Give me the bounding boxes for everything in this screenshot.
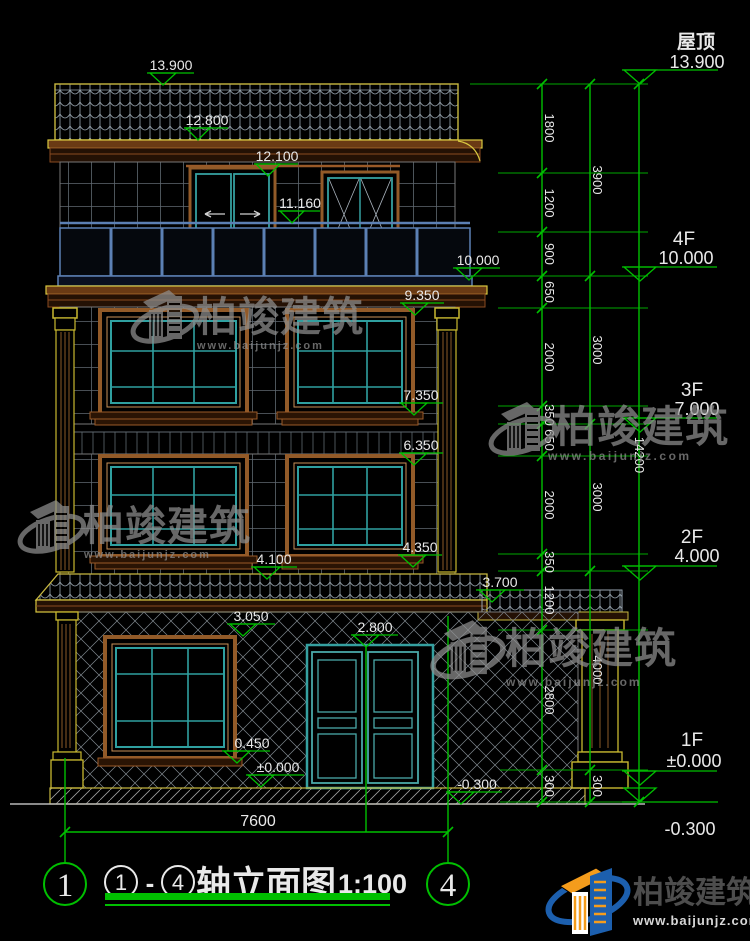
corner-pilaster-right: [435, 308, 459, 572]
floor-marker-roof: 屋顶 13.900: [622, 31, 725, 84]
elevation-value: 7.350: [403, 387, 438, 403]
elevation-value: 4.100: [256, 551, 291, 567]
roof-tiles: [55, 84, 458, 140]
title-circle-end-label: 4: [172, 870, 184, 895]
svg-text:±0.000: ±0.000: [667, 751, 722, 771]
svg-text:2000: 2000: [542, 491, 557, 520]
svg-text:-0.300: -0.300: [664, 819, 715, 839]
svg-text:2800: 2800: [542, 686, 557, 715]
elevation-value: 3.050: [233, 608, 268, 624]
elevation-value: 11.160: [279, 195, 321, 211]
dimension-width: 7600: [240, 813, 276, 830]
svg-text:1F: 1F: [681, 730, 703, 751]
elevation-value: 6.350: [403, 437, 438, 453]
svg-text:1200: 1200: [542, 189, 557, 218]
svg-text:柏竣建筑: 柏竣建筑: [553, 404, 729, 452]
title-circle-start-label: 1: [115, 870, 127, 895]
svg-text:3000: 3000: [590, 336, 605, 365]
svg-text:柏竣建筑: 柏竣建筑: [505, 625, 677, 672]
entry-double-door: [307, 645, 433, 788]
svg-text:4.000: 4.000: [674, 546, 719, 566]
2f-window-right: [287, 456, 413, 556]
footer-brand: 柏竣建筑: [633, 875, 750, 910]
svg-text:3F: 3F: [681, 380, 703, 401]
svg-text:www.baijunjz.com: www.baijunjz.com: [83, 549, 211, 561]
elevation-value: 12.800: [186, 112, 229, 128]
svg-text:3000: 3000: [590, 483, 605, 512]
balcony-railing: [58, 223, 472, 286]
svg-text:10.000: 10.000: [658, 248, 713, 268]
elevation-drawing: 13.900 12.800 12.100 11.160 10.000 9.350…: [0, 0, 750, 941]
svg-text:2F: 2F: [681, 527, 703, 548]
title-underline: [105, 893, 390, 900]
svg-text:13.900: 13.900: [669, 52, 724, 72]
svg-text:柏竣建筑: 柏竣建筑: [83, 503, 251, 549]
floor-marker-1f: 1F ±0.000: [622, 730, 721, 785]
svg-text:1800: 1800: [542, 114, 557, 143]
floor-band: [60, 432, 455, 454]
svg-text:屋顶: 屋顶: [677, 31, 715, 53]
elevation-value: 10.000: [457, 252, 500, 268]
svg-text:1200: 1200: [542, 586, 557, 615]
canopy-main: [36, 574, 487, 612]
elevation-value: 0.450: [234, 735, 269, 751]
svg-text:3900: 3900: [590, 166, 605, 195]
footer-logo-icon: [543, 868, 633, 936]
elevation-value: 9.350: [404, 287, 439, 303]
1f-window: [98, 637, 242, 766]
footer-site: www.baijunjz.com: [632, 913, 750, 928]
elevation-value: 12.100: [256, 148, 299, 164]
axis-bubble-right-label: 4: [440, 868, 457, 904]
svg-text:4F: 4F: [673, 229, 695, 250]
svg-text:www.baijunjz.com: www.baijunjz.com: [196, 340, 324, 352]
title-block: 1 4 1 - 4 轴立面图 1:100: [44, 863, 469, 905]
svg-text:300: 300: [590, 775, 605, 797]
svg-text:www.baijunjz.com: www.baijunjz.com: [547, 449, 692, 463]
cad-elevation-sheet: 13.900 12.800 12.100 11.160 10.000 9.350…: [0, 0, 750, 941]
watermark-3: 柏竣建筑 www.baijunjz.com: [487, 402, 729, 463]
axis-bubble-left-label: 1: [57, 868, 74, 904]
elevation-value: 13.900: [150, 57, 193, 73]
svg-text:650: 650: [542, 281, 557, 303]
floor-marker-4f: 4F 10.000: [622, 229, 717, 281]
svg-text:柏竣建筑: 柏竣建筑: [196, 294, 364, 340]
svg-text:www.baijunjz.com: www.baijunjz.com: [505, 675, 642, 689]
svg-text:300: 300: [542, 775, 557, 797]
elevation-value: 3.700: [482, 574, 517, 590]
elevation-value: 4.350: [402, 539, 437, 555]
floor-marker-base: -0.300: [622, 788, 718, 839]
elevation-value: -0.300: [457, 776, 497, 792]
svg-text:900: 900: [542, 243, 557, 265]
elevation-value: ±0.000: [257, 759, 300, 775]
svg-text:350: 350: [542, 551, 557, 573]
svg-text:2000: 2000: [542, 343, 557, 372]
footer-logo: 柏竣建筑 www.baijunjz.com: [543, 868, 750, 936]
elevation-value: 2.800: [357, 619, 392, 635]
